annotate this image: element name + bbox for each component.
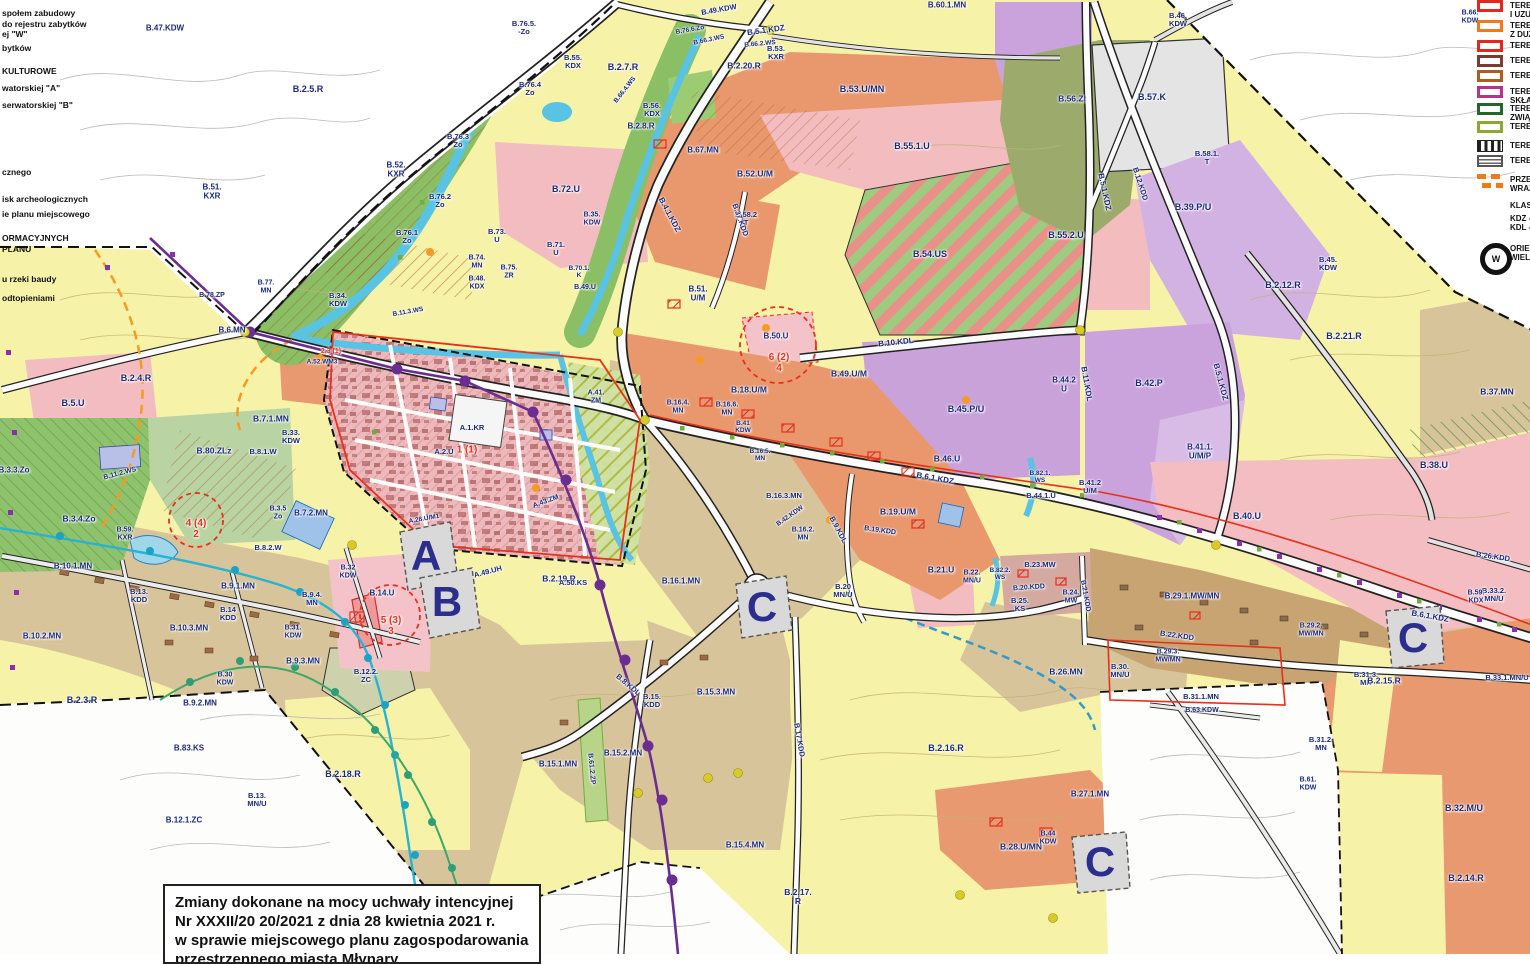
note-line: przestrzennego miasta Młynary [175, 950, 529, 964]
legend-right-label: TERENY [1510, 56, 1530, 65]
legend-swatch-dashes [1477, 174, 1503, 188]
legend-left-item: bytków [2, 43, 31, 54]
legend-swatch [1477, 121, 1503, 133]
map-canvas [0, 0, 1530, 954]
legend-swatch [1477, 70, 1503, 82]
legend-right-label: TEREN [1510, 141, 1530, 150]
legend-right-label: PRZEBI WRAZ Z [1510, 175, 1530, 193]
legend-left-item: u rzeki baudy [2, 274, 56, 285]
legend-left-item: odtopieniami [2, 293, 55, 304]
legend-right-label: KLASYFIKACJ [1510, 201, 1530, 210]
legend-right-label: TERENY [1510, 122, 1530, 131]
legend-left-item: społem zabudowy do rejestru zabytków ej … [2, 8, 87, 40]
legend-right-label: KDL - ZNACZĄ [1510, 223, 1530, 232]
zoning-map-page: { "note_box": { "lines": [ "Zmiany dokon… [0, 0, 1530, 954]
legend-left-item: serwatorskiej "B" [2, 100, 73, 111]
legend-right-label: ORIENTA WIELKOPO [1510, 244, 1530, 262]
legend-swatch-stripes [1477, 140, 1503, 152]
legend-left-item: ORMACYJNYCH PLANU [2, 233, 69, 254]
legend-right-label: TERENY [1510, 41, 1530, 50]
note-line: Nr XXXII/20 20/2021 z dnia 28 kwietnia 2… [175, 912, 529, 931]
legend-swatch [1477, 86, 1503, 98]
legend-right-label: TERENY ZWIĄZAN [1510, 104, 1530, 122]
legend-left-item: KULTUROWE [2, 66, 57, 77]
orientation-w-icon: W [1480, 243, 1512, 275]
map-svg [0, 0, 1530, 954]
legend-left-item: cznego [2, 167, 31, 178]
legend-swatch-graylines [1477, 155, 1503, 167]
legend-swatch [1477, 0, 1503, 12]
note-line: w sprawie miejscowego planu zagospodarow… [175, 931, 529, 950]
legend-swatch [1477, 103, 1503, 115]
legend-right-label: TERENY [1510, 71, 1530, 80]
legend-swatch [1477, 20, 1503, 32]
legend-right-label: TERENY Z DUŻYM [1510, 21, 1530, 39]
note-line: Zmiany dokonane na mocy uchwały intencyj… [175, 893, 529, 912]
legend-left-item: watorskiej "A" [2, 83, 60, 94]
legend-right-label: TERENY I UZUPE [1510, 1, 1530, 19]
amendment-note-box: Zmiany dokonane na mocy uchwały intencyj… [163, 884, 541, 964]
legend-right-label: KDZ - DROGI Z [1510, 214, 1530, 223]
legend-swatch [1477, 40, 1503, 52]
legend-right-label: TEREN [1510, 156, 1530, 165]
legend-swatch [1477, 55, 1503, 67]
legend-right-label: TERENY SKŁADÓ [1510, 87, 1530, 105]
legend-left-item: ie planu miejscowego [2, 209, 90, 220]
legend-left-item: isk archeologicznych [2, 194, 88, 205]
